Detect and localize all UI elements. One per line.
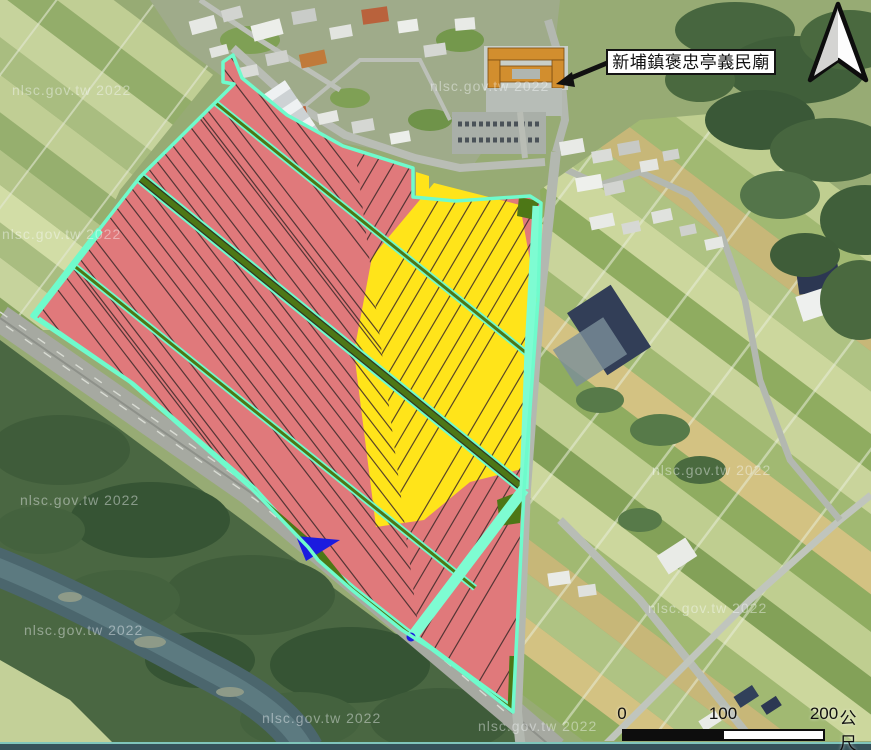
bottom-strip-edge [0,742,871,744]
temple-plaza [486,88,562,116]
map-screenshot: 新埔鎮褒忠亭義民廟 nlsc.gov.tw 2022 nlsc.gov.tw 2… [0,0,871,750]
aerial-basemap [0,0,871,750]
temple-annotation-label: 新埔鎮褒忠亭義民廟 [606,49,776,75]
bottom-strip [0,744,871,750]
parking-lot [452,112,546,154]
